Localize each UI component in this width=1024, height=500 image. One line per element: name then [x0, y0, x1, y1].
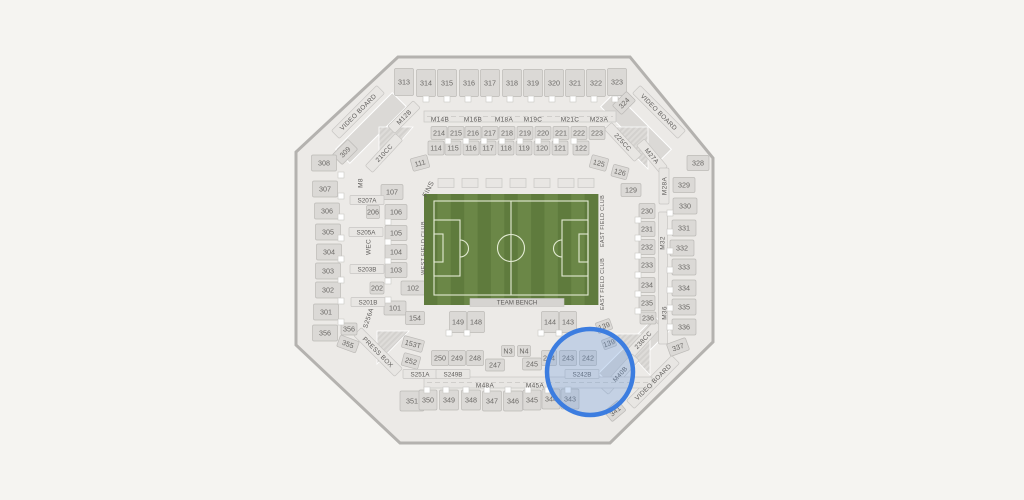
section-318[interactable]: 318 — [503, 70, 522, 97]
svg-text:M14B: M14B — [431, 116, 449, 123]
section-102[interactable]: 102 — [401, 281, 425, 295]
suite-box — [486, 179, 502, 188]
section-303-label: 303 — [322, 267, 334, 276]
section-148-label: 148 — [470, 318, 482, 327]
section-119-label: 119 — [518, 144, 529, 153]
section-116-label: 116 — [465, 144, 476, 153]
svg-text:M8: M8 — [357, 178, 364, 188]
section-202-label: 202 — [371, 284, 383, 293]
svg-text:M18A: M18A — [495, 116, 514, 123]
section-216-label: 216 — [467, 129, 479, 138]
aisle-marker — [667, 324, 673, 330]
m14b-label: M14B — [431, 116, 449, 123]
section-221-label: 221 — [555, 129, 567, 138]
section-322[interactable]: 322 — [587, 70, 606, 97]
section-301[interactable]: 301 — [314, 304, 339, 320]
svg-text:WEC: WEC — [365, 239, 372, 255]
svg-text:M16B: M16B — [464, 116, 482, 123]
section-301-label: 301 — [320, 308, 332, 317]
section-215-label: 215 — [450, 129, 462, 138]
section-218-label: 218 — [501, 129, 513, 138]
section-230[interactable]: 230 — [639, 204, 655, 219]
aisle-marker — [481, 138, 487, 144]
section-n4-label: N4 — [519, 347, 528, 356]
section-303[interactable]: 303 — [316, 263, 341, 279]
aisle-marker — [338, 319, 344, 325]
svg-text:M32: M32 — [659, 236, 666, 250]
section-356-label: 356 — [343, 325, 355, 334]
aisle-marker — [553, 138, 559, 144]
aisle-marker — [635, 217, 641, 223]
aisle-marker — [385, 258, 391, 264]
aisle-marker — [463, 387, 469, 393]
m8-label: M8 — [357, 178, 364, 188]
aisle-marker — [635, 235, 641, 241]
aisle-marker — [507, 96, 513, 102]
svg-text:M48A: M48A — [476, 382, 495, 389]
wec-label: WEC — [365, 239, 372, 255]
label-band — [659, 212, 668, 344]
section-149-label: 149 — [452, 318, 464, 327]
section-220-label: 220 — [537, 129, 549, 138]
section-222[interactable]: 222 — [571, 127, 587, 140]
section-330-label: 330 — [679, 202, 691, 211]
aisle-marker — [635, 291, 641, 297]
aisle-marker — [612, 96, 618, 102]
section-n3[interactable]: N3 — [502, 346, 515, 357]
section-323-label: 323 — [611, 78, 623, 87]
strip-s205a-label: S205A — [357, 229, 377, 236]
section-219-label: 219 — [519, 129, 531, 138]
section-308-label: 308 — [318, 159, 330, 168]
section-232[interactable]: 232 — [639, 240, 655, 255]
team-bench-label: TEAM BENCH — [497, 300, 538, 307]
section-117-label: 117 — [482, 144, 493, 153]
aisle-marker — [338, 277, 344, 283]
section-223[interactable]: 223 — [589, 127, 605, 140]
section-356[interactable]: 356 — [313, 325, 338, 341]
section-332[interactable]: 332 — [670, 240, 694, 256]
section-103-label: 103 — [390, 266, 402, 275]
aisle-marker — [338, 193, 344, 199]
section-235-label: 235 — [641, 299, 653, 308]
section-346[interactable]: 346 — [504, 391, 523, 411]
section-302-label: 302 — [322, 286, 334, 295]
section-102-label: 102 — [407, 284, 419, 293]
aisle-marker — [338, 235, 344, 241]
svg-text:M21C: M21C — [561, 116, 580, 123]
section-236-label: 236 — [642, 314, 654, 323]
m32-label: M32 — [659, 236, 666, 250]
section-336[interactable]: 336 — [672, 319, 696, 335]
section-223-label: 223 — [591, 129, 603, 138]
aisle-marker — [464, 330, 470, 336]
section-333-label: 333 — [678, 263, 690, 272]
section-250-label: 250 — [434, 354, 446, 363]
section-320[interactable]: 320 — [545, 70, 564, 97]
section-306[interactable]: 306 — [315, 203, 340, 219]
section-317-label: 317 — [484, 79, 496, 88]
section-154[interactable]: 154 — [406, 312, 425, 325]
section-214[interactable]: 214 — [431, 127, 447, 140]
strip-s203b-label: S203B — [358, 266, 377, 273]
aisle-marker — [549, 96, 555, 102]
aisle-marker — [635, 253, 641, 259]
section-216[interactable]: 216 — [465, 127, 481, 140]
aisle-marker — [667, 267, 673, 273]
section-115-label: 115 — [447, 144, 458, 153]
section-235[interactable]: 235 — [639, 296, 655, 311]
east-field-club-label: EAST FIELD CLUB — [600, 195, 606, 247]
strip-s201b[interactable]: S201B — [351, 298, 385, 307]
svg-text:M19C: M19C — [524, 116, 543, 123]
aisle-marker — [635, 308, 641, 314]
section-307[interactable]: 307 — [313, 181, 338, 197]
section-351-label: 351 — [406, 397, 418, 406]
suite-box — [462, 179, 478, 188]
section-335-label: 335 — [678, 303, 690, 312]
section-316-label: 316 — [463, 79, 475, 88]
section-331-label: 331 — [678, 224, 690, 233]
aisle-marker — [667, 229, 673, 235]
aisle-marker — [517, 138, 523, 144]
section-214-label: 214 — [433, 129, 445, 138]
section-323[interactable]: 323 — [608, 69, 627, 96]
section-302[interactable]: 302 — [316, 282, 341, 298]
section-222-label: 222 — [573, 129, 585, 138]
section-114-label: 114 — [430, 144, 441, 153]
section-154-label: 154 — [409, 314, 421, 323]
section-319[interactable]: 319 — [524, 70, 543, 97]
section-317[interactable]: 317 — [481, 70, 500, 97]
section-232-label: 232 — [641, 243, 653, 252]
section-315[interactable]: 315 — [438, 70, 457, 97]
m19c-label: M19C — [524, 116, 543, 123]
suite-box — [510, 179, 526, 188]
aisle-marker — [556, 330, 562, 336]
section-206[interactable]: 206 — [367, 206, 380, 219]
aisle-marker — [385, 239, 391, 245]
strip-s207a-label: S207A — [358, 197, 378, 204]
section-350-label: 350 — [422, 396, 434, 405]
strip-s203b[interactable]: S203B — [350, 265, 384, 274]
section-120-label: 120 — [536, 144, 548, 153]
section-319-label: 319 — [527, 79, 539, 88]
east-field-club-label: EAST FIELD CLUB — [600, 258, 606, 310]
m18a-label: M18A — [495, 116, 514, 123]
section-333[interactable]: 333 — [672, 259, 696, 275]
section-334[interactable]: 334 — [672, 280, 696, 296]
section-101-label: 101 — [389, 304, 401, 313]
section-347[interactable]: 347 — [483, 391, 502, 411]
west-field-club-label: WEST FIELD CLUB — [421, 221, 427, 275]
section-305-label: 305 — [322, 228, 334, 237]
section-106-label: 106 — [390, 208, 402, 217]
section-330[interactable]: 330 — [673, 198, 697, 214]
section-320-label: 320 — [548, 79, 560, 88]
section-348-label: 348 — [465, 396, 477, 405]
aisle-marker — [570, 96, 576, 102]
stadium-map: 3133143153163173183193203213223233242142… — [0, 0, 1024, 500]
section-245[interactable]: 245 — [523, 358, 542, 370]
aisle-marker — [667, 287, 673, 293]
aisle-marker — [499, 138, 505, 144]
section-249-label: 249 — [451, 354, 463, 363]
svg-text:M28A: M28A — [661, 177, 668, 196]
section-307-label: 307 — [319, 185, 331, 194]
section-346-label: 346 — [507, 397, 519, 406]
section-308[interactable]: 308 — [312, 155, 337, 171]
section-313-label: 313 — [398, 78, 410, 87]
section-104[interactable]: 104 — [385, 245, 407, 260]
strip-s201b-label: S201B — [359, 299, 378, 306]
section-316[interactable]: 316 — [460, 70, 479, 97]
aisle-marker — [385, 278, 391, 284]
section-236[interactable]: 236 — [640, 312, 656, 324]
section-106[interactable]: 106 — [385, 205, 407, 220]
svg-text:M23A: M23A — [590, 116, 609, 123]
section-233[interactable]: 233 — [639, 258, 655, 273]
section-304-label: 304 — [323, 248, 335, 257]
aisle-marker — [445, 138, 451, 144]
section-321-label: 321 — [569, 79, 581, 88]
suite-box — [534, 179, 550, 188]
section-314[interactable]: 314 — [417, 70, 436, 97]
aisle-marker — [338, 214, 344, 220]
section-230-label: 230 — [641, 207, 653, 216]
aisle-marker — [635, 272, 641, 278]
m28a-label: M28A — [661, 177, 668, 196]
section-331[interactable]: 331 — [672, 220, 696, 236]
section-247-label: 247 — [489, 361, 501, 370]
section-305[interactable]: 305 — [316, 224, 341, 240]
section-335[interactable]: 335 — [672, 299, 696, 315]
aisle-marker — [385, 219, 391, 225]
section-314-label: 314 — [420, 79, 432, 88]
svg-text:M45A: M45A — [526, 382, 545, 389]
section-345-label: 345 — [526, 396, 538, 405]
m36-label: M36 — [661, 306, 668, 320]
m48a-label: M48A — [476, 382, 495, 389]
aisle-marker — [528, 96, 534, 102]
svg-text:M36: M36 — [661, 306, 668, 320]
aisle-marker — [338, 256, 344, 262]
section-149[interactable]: 149 — [450, 312, 467, 333]
m45a-label: M45A — [526, 382, 545, 389]
section-328[interactable]: 328 — [687, 156, 709, 171]
aisle-marker — [591, 96, 597, 102]
section-234[interactable]: 234 — [639, 278, 655, 293]
aisle-marker — [465, 96, 471, 102]
aisle-marker — [424, 387, 430, 393]
section-332-label: 332 — [676, 244, 688, 253]
seat-map-canvas: 3133143153163173183193203213223233242142… — [0, 0, 1024, 500]
section-250[interactable]: 250 — [432, 351, 449, 366]
suite-box — [438, 179, 454, 188]
section-105-label: 105 — [390, 229, 402, 238]
section-107-label: 107 — [386, 188, 398, 197]
section-318-label: 318 — [506, 79, 518, 88]
section-144-label: 144 — [544, 318, 556, 327]
section-105[interactable]: 105 — [385, 226, 407, 241]
strip-s249b-label: S249B — [444, 371, 463, 378]
section-234-label: 234 — [641, 281, 653, 290]
section-143-label: 143 — [562, 318, 574, 327]
section-220[interactable]: 220 — [535, 127, 551, 140]
soccer-field: TEAM BENCH — [424, 194, 598, 307]
section-217[interactable]: 217 — [482, 127, 498, 140]
section-336-label: 336 — [678, 323, 690, 332]
section-217-label: 217 — [484, 129, 496, 138]
section-202[interactable]: 202 — [370, 282, 384, 294]
aisle-marker — [667, 210, 673, 216]
svg-text:EAST FIELD CLUB: EAST FIELD CLUB — [600, 195, 606, 247]
section-249[interactable]: 249 — [449, 351, 466, 366]
strip-s251a[interactable]: S251A — [403, 370, 437, 379]
section-n4[interactable]: N4 — [518, 346, 531, 357]
section-329[interactable]: 329 — [673, 178, 695, 193]
strip-s207a[interactable]: S207A — [350, 196, 384, 205]
section-328-label: 328 — [692, 159, 704, 168]
aisle-marker — [463, 138, 469, 144]
section-231-label: 231 — [641, 225, 653, 234]
strip-s205a[interactable]: S205A — [349, 228, 383, 237]
section-148[interactable]: 148 — [468, 312, 485, 333]
aisle-marker — [535, 138, 541, 144]
aisle-marker — [444, 96, 450, 102]
m21c-label: M21C — [561, 116, 580, 123]
section-356-label: 356 — [319, 329, 331, 338]
section-218[interactable]: 218 — [499, 127, 515, 140]
section-321[interactable]: 321 — [566, 70, 585, 97]
section-233-label: 233 — [641, 261, 653, 270]
section-329-label: 329 — [678, 181, 690, 190]
section-315-label: 315 — [441, 79, 453, 88]
section-121-label: 121 — [554, 144, 566, 153]
section-129[interactable]: 129 — [621, 184, 641, 197]
section-347-label: 347 — [486, 397, 498, 406]
aisle-marker — [538, 330, 544, 336]
strip-s251a-label: S251A — [411, 371, 431, 378]
aisle-marker — [571, 138, 577, 144]
aisle-marker — [486, 96, 492, 102]
section-247[interactable]: 247 — [486, 359, 505, 371]
section-334-label: 334 — [678, 284, 690, 293]
aisle-marker — [505, 387, 511, 393]
suite-box — [558, 179, 574, 188]
strip-s249b[interactable]: S249B — [436, 370, 470, 379]
section-215[interactable]: 215 — [448, 127, 464, 140]
section-143[interactable]: 143 — [560, 312, 577, 333]
section-118-label: 118 — [500, 144, 511, 153]
section-349-label: 349 — [443, 396, 455, 405]
section-206-label: 206 — [367, 208, 379, 217]
section-306-label: 306 — [321, 207, 333, 216]
section-122-label: 122 — [575, 144, 587, 153]
aisle-marker — [423, 96, 429, 102]
section-313[interactable]: 313 — [395, 69, 414, 96]
section-n3-label: N3 — [503, 347, 512, 356]
m23a-label: M23A — [590, 116, 609, 123]
section-103[interactable]: 103 — [385, 263, 407, 278]
section-144[interactable]: 144 — [542, 312, 559, 333]
m16b-label: M16B — [464, 116, 482, 123]
aisle-marker — [667, 248, 673, 254]
aisle-marker — [385, 297, 391, 303]
aisle-marker — [443, 387, 449, 393]
suite-box — [578, 179, 594, 188]
section-104-label: 104 — [390, 248, 402, 257]
section-129-label: 129 — [625, 186, 637, 195]
aisle-marker — [338, 172, 344, 178]
svg-text:EAST FIELD CLUB: EAST FIELD CLUB — [600, 258, 606, 310]
aisle-marker — [446, 330, 452, 336]
section-245-label: 245 — [526, 360, 538, 369]
section-248-label: 248 — [469, 354, 481, 363]
section-219[interactable]: 219 — [517, 127, 533, 140]
section-114[interactable]: 114 — [428, 141, 444, 155]
section-231[interactable]: 231 — [639, 222, 655, 237]
section-248[interactable]: 248 — [467, 351, 484, 366]
section-322-label: 322 — [590, 79, 602, 88]
section-221[interactable]: 221 — [553, 127, 569, 140]
svg-text:WEST FIELD CLUB: WEST FIELD CLUB — [421, 221, 427, 275]
aisle-marker — [338, 298, 344, 304]
